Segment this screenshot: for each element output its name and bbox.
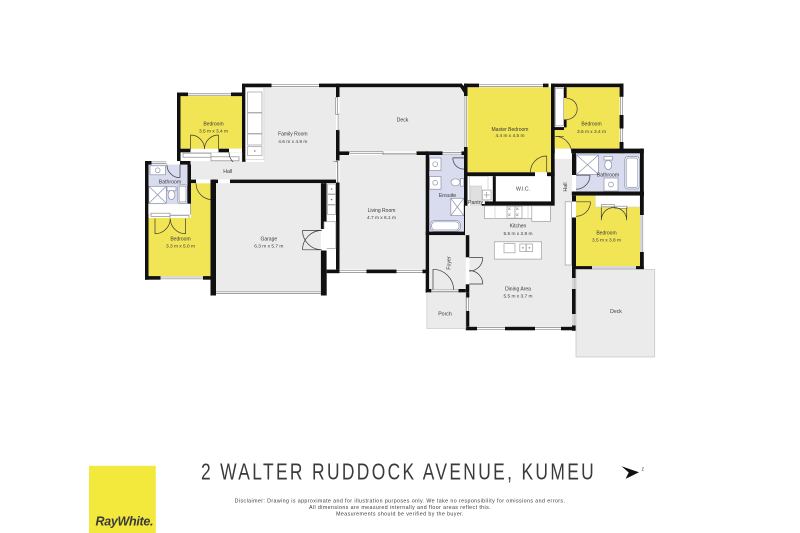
- svg-text:Hall: Hall: [223, 169, 232, 175]
- svg-text:Hall: Hall: [563, 183, 569, 192]
- svg-text:Foyer: Foyer: [447, 256, 453, 270]
- svg-text:Family Room: Family Room: [278, 132, 307, 138]
- svg-text:Dining Area: Dining Area: [505, 286, 531, 292]
- svg-text:All dimensions are measured in: All dimensions are measured internally a…: [309, 505, 491, 511]
- svg-text:Kitchen: Kitchen: [510, 224, 527, 230]
- svg-text:Deck: Deck: [397, 118, 409, 124]
- svg-text:2 WALTER RUDDOCK AVENUE, KUMEU: 2 WALTER RUDDOCK AVENUE, KUMEU: [201, 459, 596, 485]
- svg-text:Bedroom: Bedroom: [170, 237, 190, 243]
- svg-text:RayWhite.: RayWhite.: [96, 515, 154, 529]
- svg-text:Garage: Garage: [260, 237, 277, 243]
- svg-text:4.7 m x 6.1 m: 4.7 m x 6.1 m: [367, 215, 396, 221]
- svg-text:3.3 m x 5.0 m: 3.3 m x 5.0 m: [166, 244, 195, 250]
- svg-text:Bedroom: Bedroom: [203, 122, 223, 128]
- svg-text:Pantry: Pantry: [468, 200, 483, 206]
- svg-text:Living Room: Living Room: [368, 208, 396, 214]
- svg-text:6.3 m x 5.7 m: 6.3 m x 5.7 m: [254, 244, 283, 250]
- svg-text:5.5 m x 2.8 m: 5.5 m x 2.8 m: [503, 231, 532, 237]
- svg-text:5.5 m x 3.7 m: 5.5 m x 3.7 m: [503, 293, 532, 299]
- svg-text:W.I.C.: W.I.C.: [516, 187, 530, 193]
- svg-text:Disclaimer: Drawing is approxi: Disclaimer: Drawing is approximate and f…: [235, 499, 566, 505]
- svg-text:4.4 m x 4.5 m: 4.4 m x 4.5 m: [495, 133, 524, 139]
- svg-text:Ensuite: Ensuite: [439, 193, 456, 199]
- svg-text:Bedroom: Bedroom: [581, 122, 601, 128]
- svg-text:Porch: Porch: [438, 312, 452, 318]
- svg-text:3.5 m x 3.8 m: 3.5 m x 3.8 m: [592, 238, 621, 244]
- svg-text:Bathroom: Bathroom: [597, 173, 620, 179]
- svg-text:4.6 m x 4.9 m: 4.6 m x 4.9 m: [278, 139, 307, 145]
- svg-text:3.6 m x 3.4 m: 3.6 m x 3.4 m: [577, 129, 606, 135]
- svg-text:Bathroom: Bathroom: [159, 180, 182, 186]
- svg-text:Deck: Deck: [610, 309, 622, 315]
- svg-text:Measurements should be verifie: Measurements should be verified by the b…: [336, 512, 464, 518]
- svg-text:Master Bedroom: Master Bedroom: [492, 127, 529, 133]
- svg-text:Bedroom: Bedroom: [596, 231, 616, 237]
- svg-text:3.5 m x 3.4 m: 3.5 m x 3.4 m: [199, 129, 228, 135]
